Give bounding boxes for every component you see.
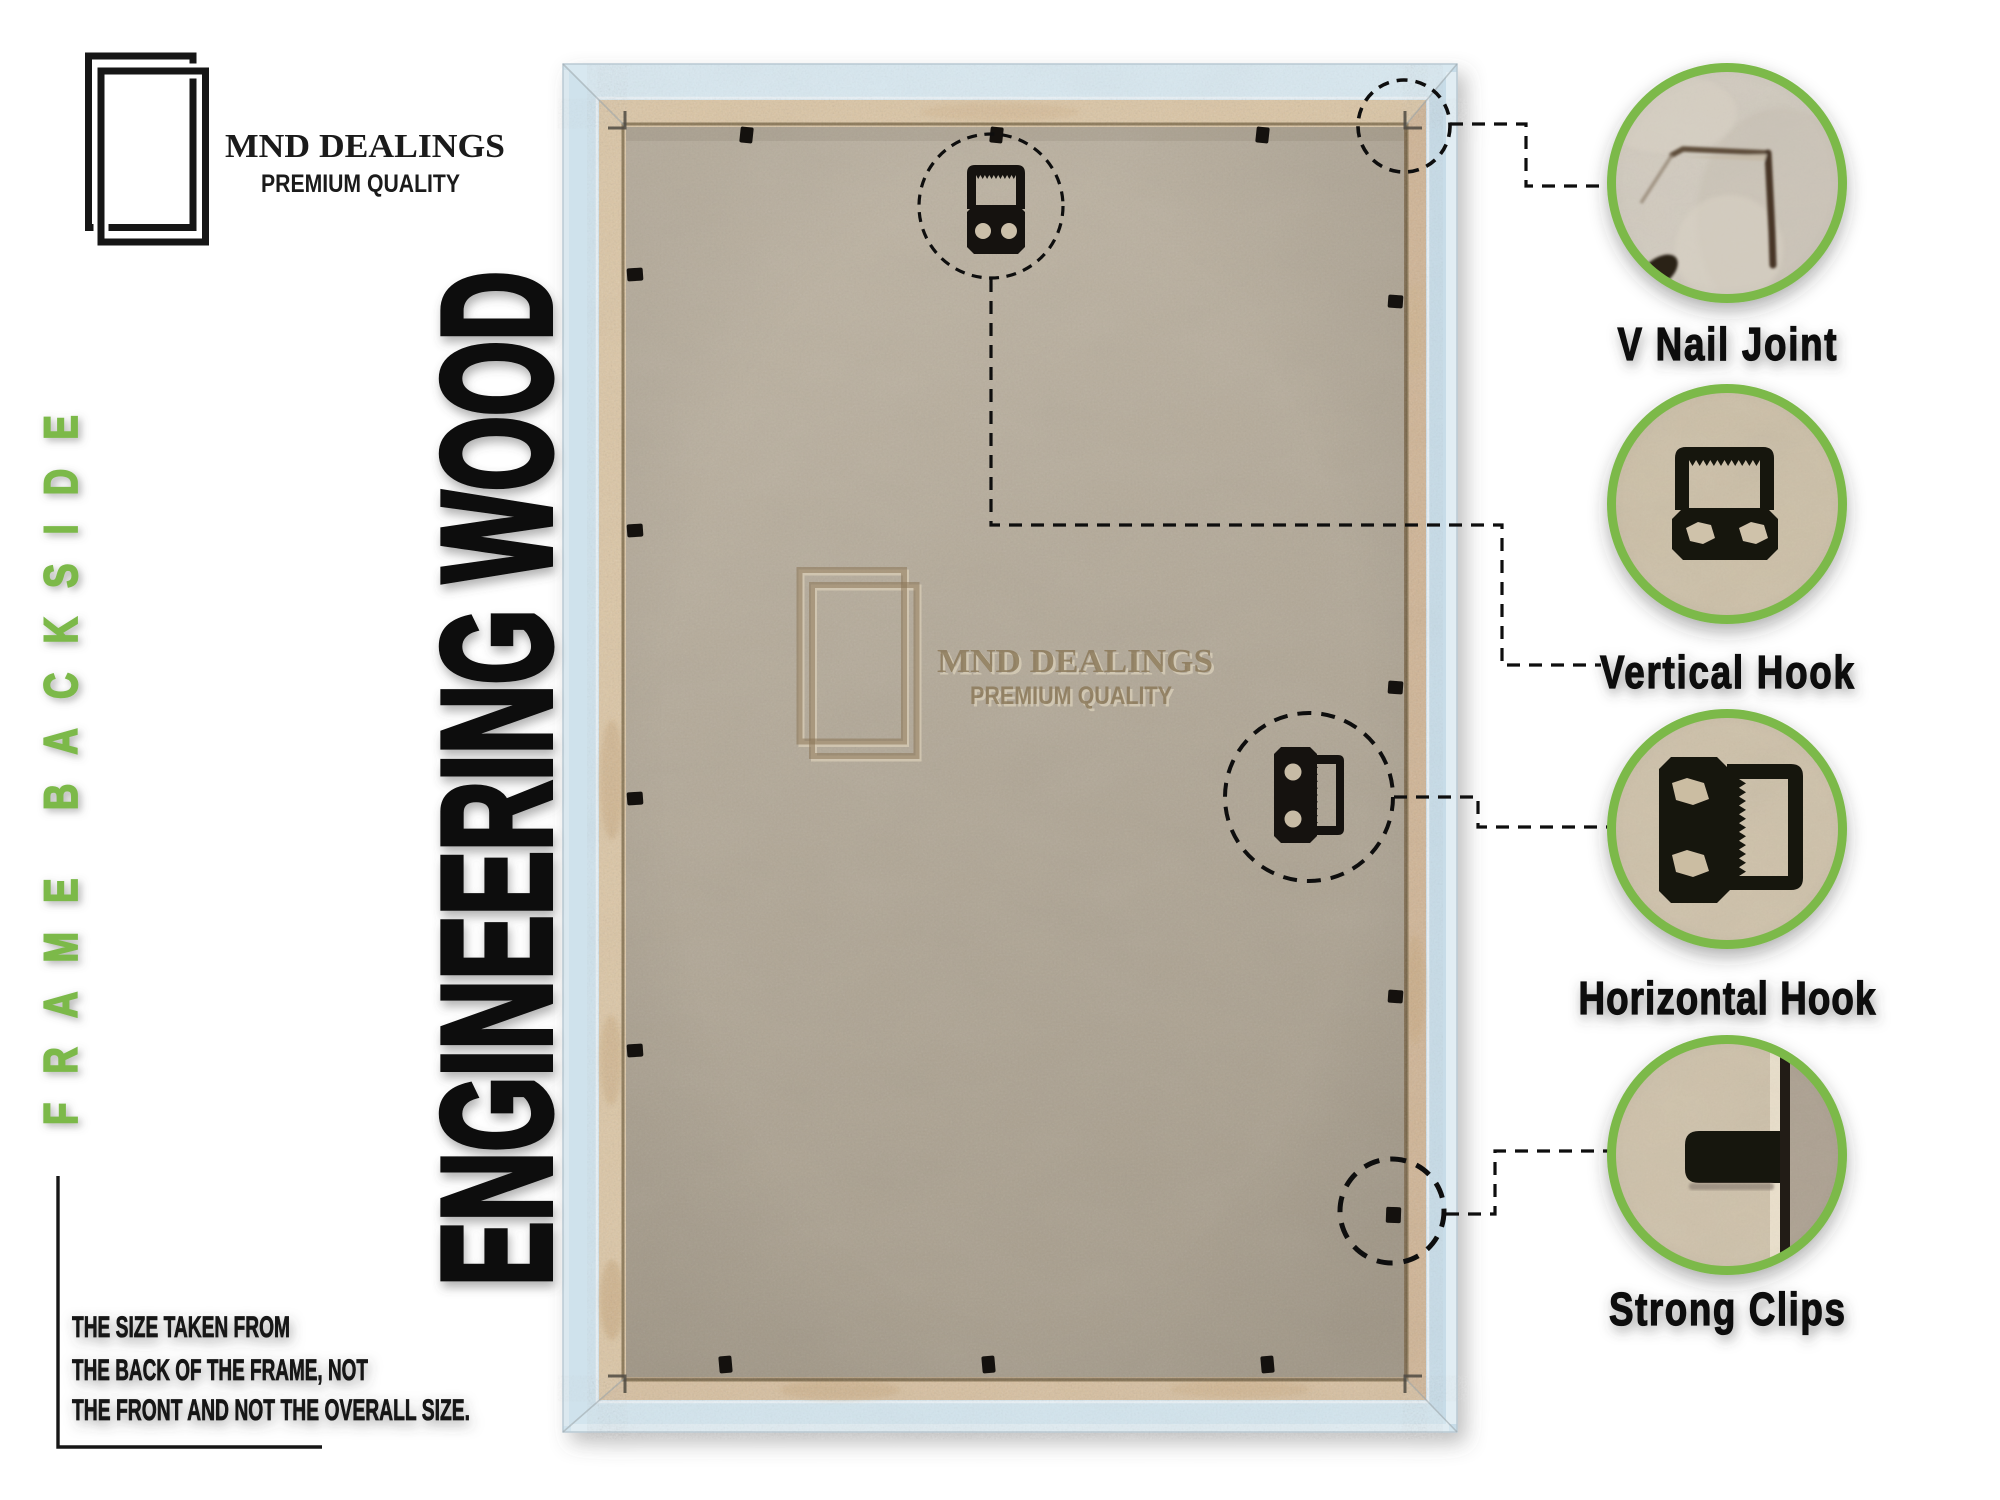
svg-text:MND DEALINGS: MND DEALINGS: [937, 643, 1213, 680]
svg-text:V Nail Joint: V Nail Joint: [1618, 318, 1837, 370]
svg-text:THE BACK OF THE FRAME, NOT: THE BACK OF THE FRAME, NOT: [72, 1354, 368, 1387]
svg-text:PREMIUM QUALITY: PREMIUM QUALITY: [970, 682, 1172, 710]
svg-text:PREMIUM QUALITY: PREMIUM QUALITY: [261, 170, 460, 198]
svg-text:Horizontal Hook: Horizontal Hook: [1578, 972, 1876, 1024]
svg-text:ENGINEERING WOOD: ENGINEERING WOOD: [410, 271, 583, 1286]
svg-text:MND DEALINGS: MND DEALINGS: [225, 128, 505, 165]
svg-text:Strong Clips: Strong Clips: [1609, 1283, 1845, 1335]
svg-text:Vertical Hook: Vertical Hook: [1600, 646, 1855, 698]
svg-text:THE FRONT AND NOT THE OVERALL: THE FRONT AND NOT THE OVERALL SIZE.: [72, 1394, 470, 1427]
svg-text:THE SIZE TAKEN FROM: THE SIZE TAKEN FROM: [72, 1311, 290, 1344]
